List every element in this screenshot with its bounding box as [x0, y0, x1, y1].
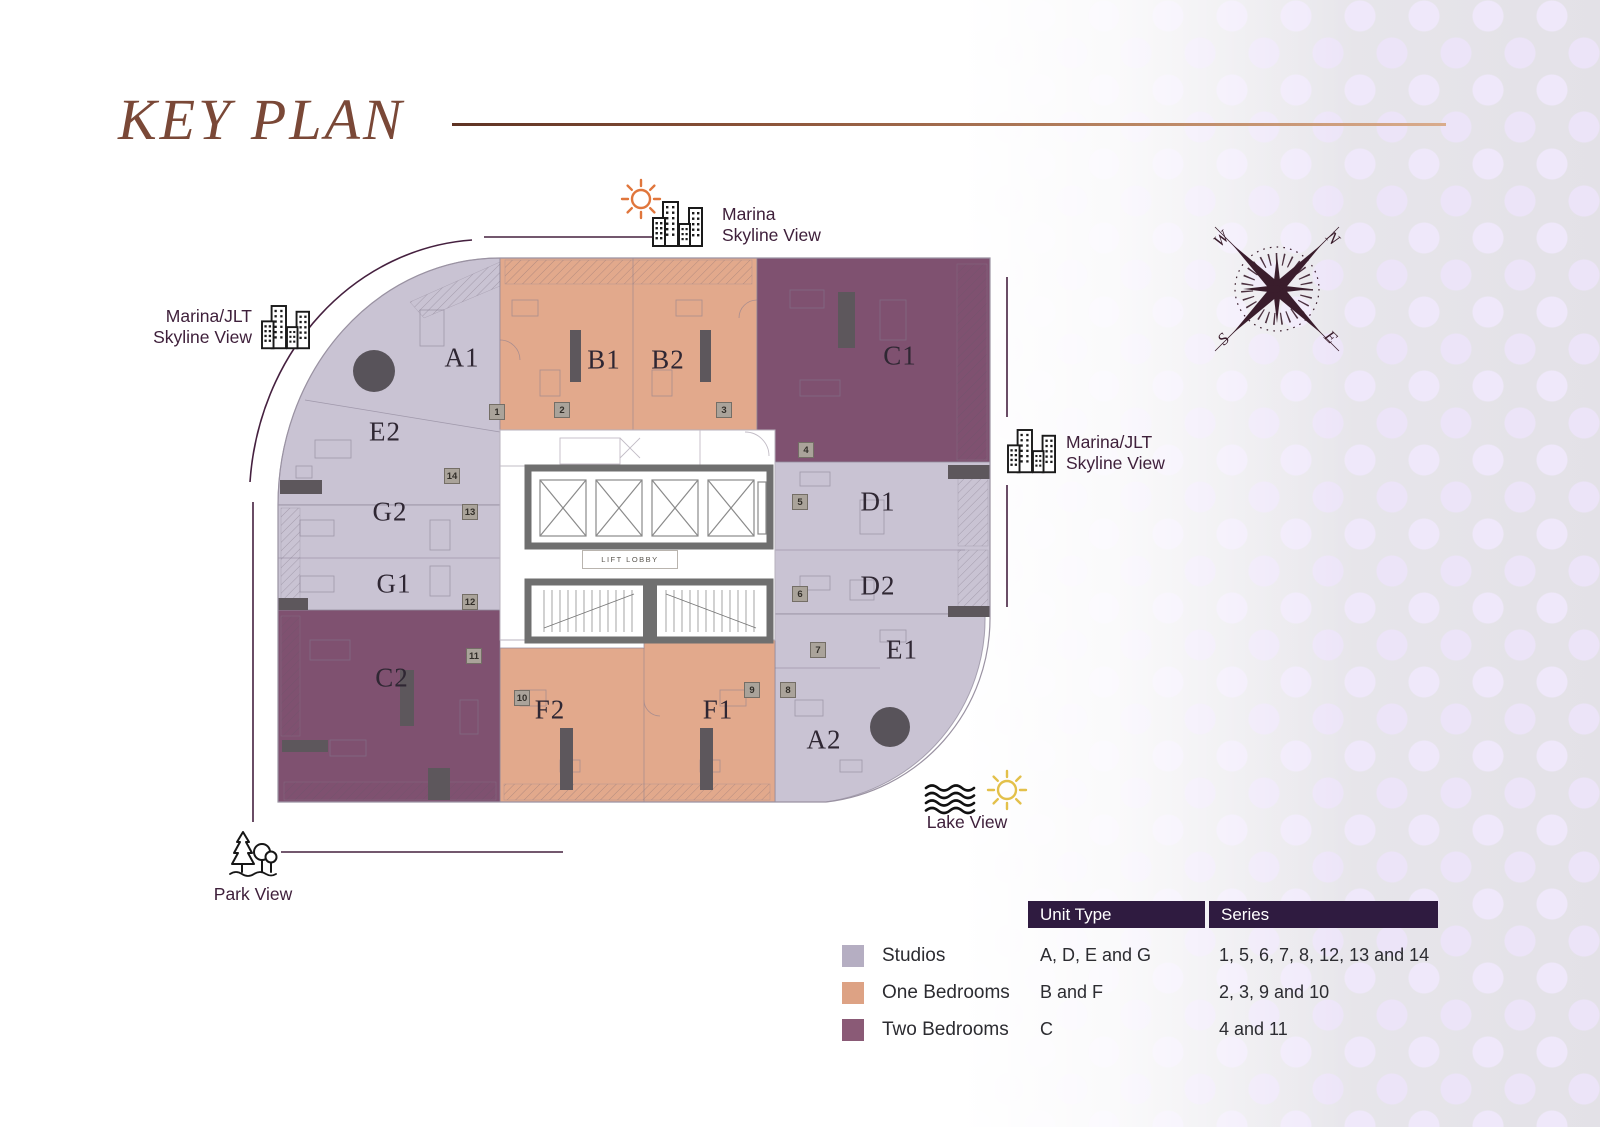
- legend: Unit Type Series Studios A, D, E and G 1…: [842, 901, 1438, 1048]
- view-label-lake: Lake View: [900, 812, 1034, 833]
- series-badge: 14: [444, 468, 460, 484]
- legend-row-series: 2, 3, 9 and 10: [1207, 982, 1438, 1003]
- legend-swatch: [842, 1019, 864, 1041]
- unit-label: C2: [375, 663, 409, 694]
- series-badge: 4: [798, 442, 814, 458]
- unit-label: F2: [535, 695, 566, 726]
- compass-rose: N E S W: [1209, 226, 1344, 351]
- buildings-icon-top: [653, 202, 702, 246]
- series-badge: 9: [744, 682, 760, 698]
- unit-shape-c2: [278, 610, 500, 802]
- view-label-marina-skyline: MarinaSkyline View: [722, 204, 821, 246]
- legend-row-label: One Bedrooms: [882, 982, 1028, 1004]
- legend-row-unit-type: B and F: [1028, 982, 1207, 1003]
- view-label-marina-jlt-left: Marina/JLTSkyline View: [140, 306, 252, 348]
- unit-label: G2: [373, 497, 408, 528]
- legend-row-series: 1, 5, 6, 7, 8, 12, 13 and 14: [1207, 945, 1438, 966]
- unit-label: B1: [587, 345, 621, 376]
- series-badge: 8: [780, 682, 796, 698]
- trees-icon: [230, 832, 277, 876]
- series-badge: 13: [462, 504, 478, 520]
- legend-rows: Studios A, D, E and G 1, 5, 6, 7, 8, 12,…: [842, 937, 1438, 1048]
- legend-row: Studios A, D, E and G 1, 5, 6, 7, 8, 12,…: [842, 937, 1438, 974]
- unit-label: A2: [807, 725, 842, 756]
- unit-label: E2: [369, 417, 401, 448]
- legend-header-series: Series: [1209, 901, 1438, 928]
- lift-shafts: [540, 480, 766, 536]
- unit-label: D2: [861, 571, 896, 602]
- unit-label: C1: [883, 341, 917, 372]
- unit-label: F1: [703, 695, 734, 726]
- unit-shape-c1: [757, 258, 990, 462]
- series-badge: 7: [810, 642, 826, 658]
- lift-lobby-label: LIFT LOBBY: [582, 550, 678, 569]
- sun-icon-top: [622, 180, 660, 218]
- view-label-marina-jlt-right: Marina/JLTSkyline View: [1066, 432, 1165, 474]
- legend-swatch: [842, 945, 864, 967]
- legend-row-label: Studios: [882, 945, 1028, 967]
- legend-row: Two Bedrooms C 4 and 11: [842, 1011, 1438, 1048]
- unit-label: B2: [651, 345, 685, 376]
- series-badge: 12: [462, 594, 478, 610]
- sun-icon-lake: [988, 771, 1026, 809]
- series-badge: 3: [716, 402, 732, 418]
- core: [500, 430, 775, 640]
- legend-row-series: 4 and 11: [1207, 1019, 1438, 1040]
- legend-header-unit-type: Unit Type: [1028, 901, 1205, 928]
- compass-e: E: [1320, 326, 1342, 348]
- legend-row: One Bedrooms B and F 2, 3, 9 and 10: [842, 974, 1438, 1011]
- compass-w: W: [1209, 226, 1234, 251]
- buildings-icon-left: [262, 306, 309, 348]
- compass-s: S: [1214, 329, 1234, 349]
- legend-row-unit-type: A, D, E and G: [1028, 945, 1207, 966]
- unit-label: G1: [377, 569, 412, 600]
- series-badge: 5: [792, 494, 808, 510]
- series-badge: 1: [489, 404, 505, 420]
- legend-row-label: Two Bedrooms: [882, 1019, 1028, 1041]
- unit-label: D1: [861, 487, 896, 518]
- series-badge: 2: [554, 402, 570, 418]
- legend-headers: Unit Type Series: [842, 901, 1438, 928]
- compass-n: N: [1321, 227, 1344, 250]
- view-label-park: Park View: [192, 884, 314, 905]
- key-plan-page: KEY PLAN: [0, 0, 1600, 1127]
- unit-label: E1: [886, 635, 918, 666]
- legend-row-unit-type: C: [1028, 1019, 1207, 1040]
- legend-swatch: [842, 982, 864, 1004]
- unit-label: A1: [445, 343, 480, 374]
- series-badge: 11: [466, 648, 482, 664]
- series-badge: 6: [792, 586, 808, 602]
- waves-icon: [926, 786, 974, 814]
- buildings-icon-right: [1008, 430, 1055, 472]
- series-badge: 10: [514, 690, 530, 706]
